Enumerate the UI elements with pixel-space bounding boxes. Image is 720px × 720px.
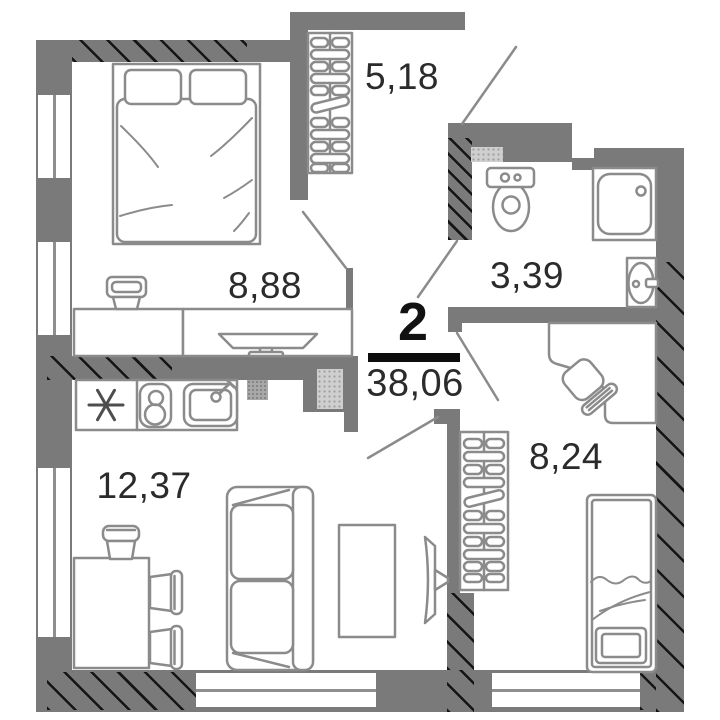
kitchen-sink-icon bbox=[184, 380, 237, 426]
washbasin-icon bbox=[627, 258, 658, 307]
stove-icon bbox=[140, 384, 171, 427]
hallway-wardrobe-icon bbox=[308, 33, 352, 173]
room-area-label-bathroom: 3,39 bbox=[490, 255, 564, 297]
room-area-label-bedroom: 8,88 bbox=[228, 265, 302, 307]
single-bed-icon bbox=[587, 495, 656, 672]
furniture-layer bbox=[0, 0, 720, 720]
rooms-count-label: 2 bbox=[398, 291, 428, 353]
door-leaf-bedroom bbox=[303, 212, 346, 268]
leader-line-top bbox=[462, 47, 516, 124]
tv-unit-icon bbox=[183, 309, 352, 356]
toilet-icon bbox=[487, 168, 534, 231]
label-divider-bar bbox=[368, 353, 460, 362]
leader-line-living bbox=[368, 417, 438, 458]
dining-chair-icon bbox=[150, 571, 182, 614]
dining-chair-icon bbox=[103, 526, 139, 559]
chair-icon bbox=[107, 277, 146, 309]
sofa-icon bbox=[227, 487, 313, 670]
desk-icon bbox=[74, 309, 183, 356]
dining-table-icon bbox=[74, 558, 149, 668]
leader-line-center bbox=[418, 241, 457, 297]
room-area-label-bedroom2: 8,24 bbox=[529, 436, 603, 478]
coffee-table-icon bbox=[339, 525, 395, 637]
room-area-label-kitchen-living: 12,37 bbox=[96, 465, 191, 507]
bedroom2-wardrobe-icon bbox=[460, 432, 508, 590]
room-area-label-hallway: 5,18 bbox=[365, 56, 439, 98]
dining-chair-icon bbox=[150, 626, 182, 669]
total-area-label: 38,06 bbox=[366, 363, 464, 406]
shower-icon bbox=[593, 168, 656, 240]
floor-plan: 5,18 8,88 3,39 12,37 8,24 2 38,06 bbox=[0, 0, 720, 720]
wall-tv-icon bbox=[425, 537, 448, 623]
double-bed-icon bbox=[113, 64, 260, 244]
